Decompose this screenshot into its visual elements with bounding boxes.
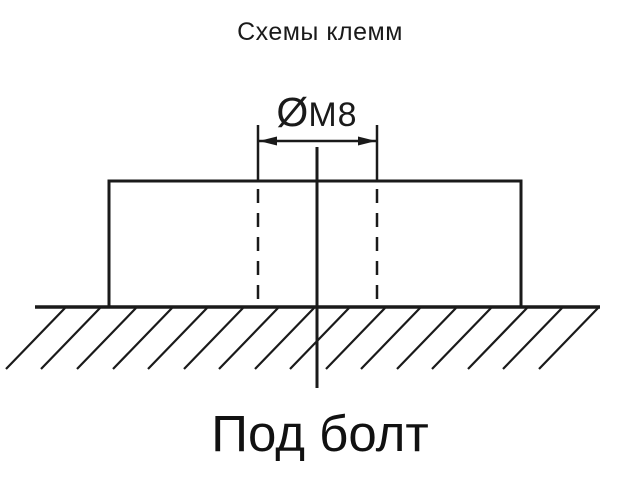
hatch-line	[397, 308, 456, 369]
hatch-line	[148, 308, 207, 369]
hatch-line	[184, 308, 243, 369]
dimension-arrow-left-icon	[259, 137, 277, 146]
hatch-line	[255, 308, 314, 369]
terminal-body-outline	[109, 181, 521, 307]
diagram-caption: Под болт	[0, 406, 640, 462]
hatch-line	[503, 308, 562, 369]
dimension-arrow-right-icon	[358, 137, 376, 146]
hatch-line	[77, 308, 136, 369]
hatch-line	[6, 308, 65, 369]
hatch-line	[468, 308, 527, 369]
hatch-line	[539, 308, 598, 369]
hatch-line	[432, 308, 491, 369]
hatch-line	[113, 308, 172, 369]
hatch-line	[290, 308, 349, 369]
hatch-line	[361, 308, 420, 369]
hatch-line	[326, 308, 385, 369]
hatching	[6, 308, 598, 369]
hatch-line	[41, 308, 100, 369]
terminal-scheme-page: Схемы клемм ØM8	[0, 0, 640, 480]
hatch-line	[219, 308, 278, 369]
